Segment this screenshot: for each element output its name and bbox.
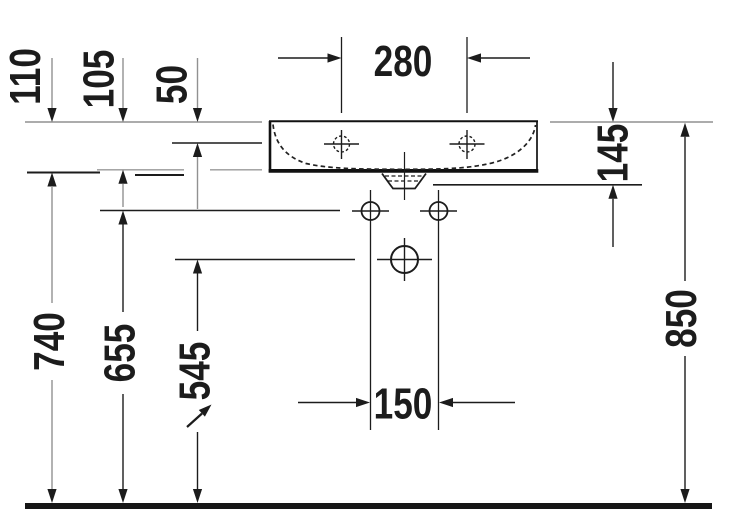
dim-150-label: 150 — [374, 380, 433, 429]
dim-545-arrow-floor — [193, 489, 202, 503]
dimension-145: 145 — [589, 62, 638, 247]
dim-105-arrow-down — [118, 108, 127, 122]
dim-145-arrow-down — [608, 108, 617, 122]
dim-545-leader-line — [187, 414, 202, 428]
dim-110-label: 110 — [1, 48, 50, 105]
dimension-50: 50 — [148, 58, 202, 209]
dim-105-arrow-up — [118, 170, 127, 184]
dim-545-arrow-top — [193, 260, 202, 274]
dimension-drawing-page: 280 110 105 50 145 740 — [0, 0, 740, 530]
dim-740-arrow-floor — [47, 489, 56, 503]
dim-145-arrow-up — [608, 185, 617, 199]
dim-850-arrow-floor — [680, 489, 689, 503]
dimension-850: 850 — [657, 123, 706, 503]
dimension-105: 105 — [75, 50, 128, 207]
dimension-150: 150 — [298, 380, 515, 429]
faucet-hole-right — [450, 130, 485, 159]
washbasin — [269, 121, 539, 200]
faucet-hole-left — [324, 130, 359, 159]
dim-145-label: 145 — [589, 124, 638, 183]
dim-850-arrow-top — [680, 123, 689, 137]
dimension-545: 545 — [171, 260, 220, 504]
dimension-740: 740 — [25, 186, 74, 503]
floor-line — [25, 503, 712, 509]
dim-150-arrow-right — [439, 398, 453, 407]
dim-545-label: 545 — [171, 342, 220, 401]
technical-drawing-canvas: 280 110 105 50 145 740 — [0, 0, 740, 530]
dim-655-arrow-floor — [118, 489, 127, 503]
dim-50-arrow-up — [193, 143, 202, 157]
dim-740-label: 740 — [25, 312, 74, 371]
dim-280-arrow-left — [328, 53, 342, 62]
dim-655-arrow-top — [118, 211, 127, 225]
dim-850-label: 850 — [657, 289, 706, 348]
dimension-280: 280 — [278, 37, 530, 113]
dim-150-arrow-left — [356, 398, 370, 407]
dim-655-label: 655 — [96, 324, 145, 383]
dim-50-arrow-down — [193, 108, 202, 122]
dimension-110: 110 — [1, 48, 56, 186]
dim-280-label: 280 — [374, 37, 433, 86]
dim-110-arrow-down — [47, 108, 56, 122]
wall-outlet-hole — [377, 238, 432, 281]
dimension-655: 655 — [96, 211, 145, 504]
dim-110-arrow-up — [47, 173, 56, 187]
dim-105-label: 105 — [75, 50, 124, 109]
dim-280-arrow-right — [467, 53, 481, 62]
dim-50-label: 50 — [148, 65, 197, 104]
